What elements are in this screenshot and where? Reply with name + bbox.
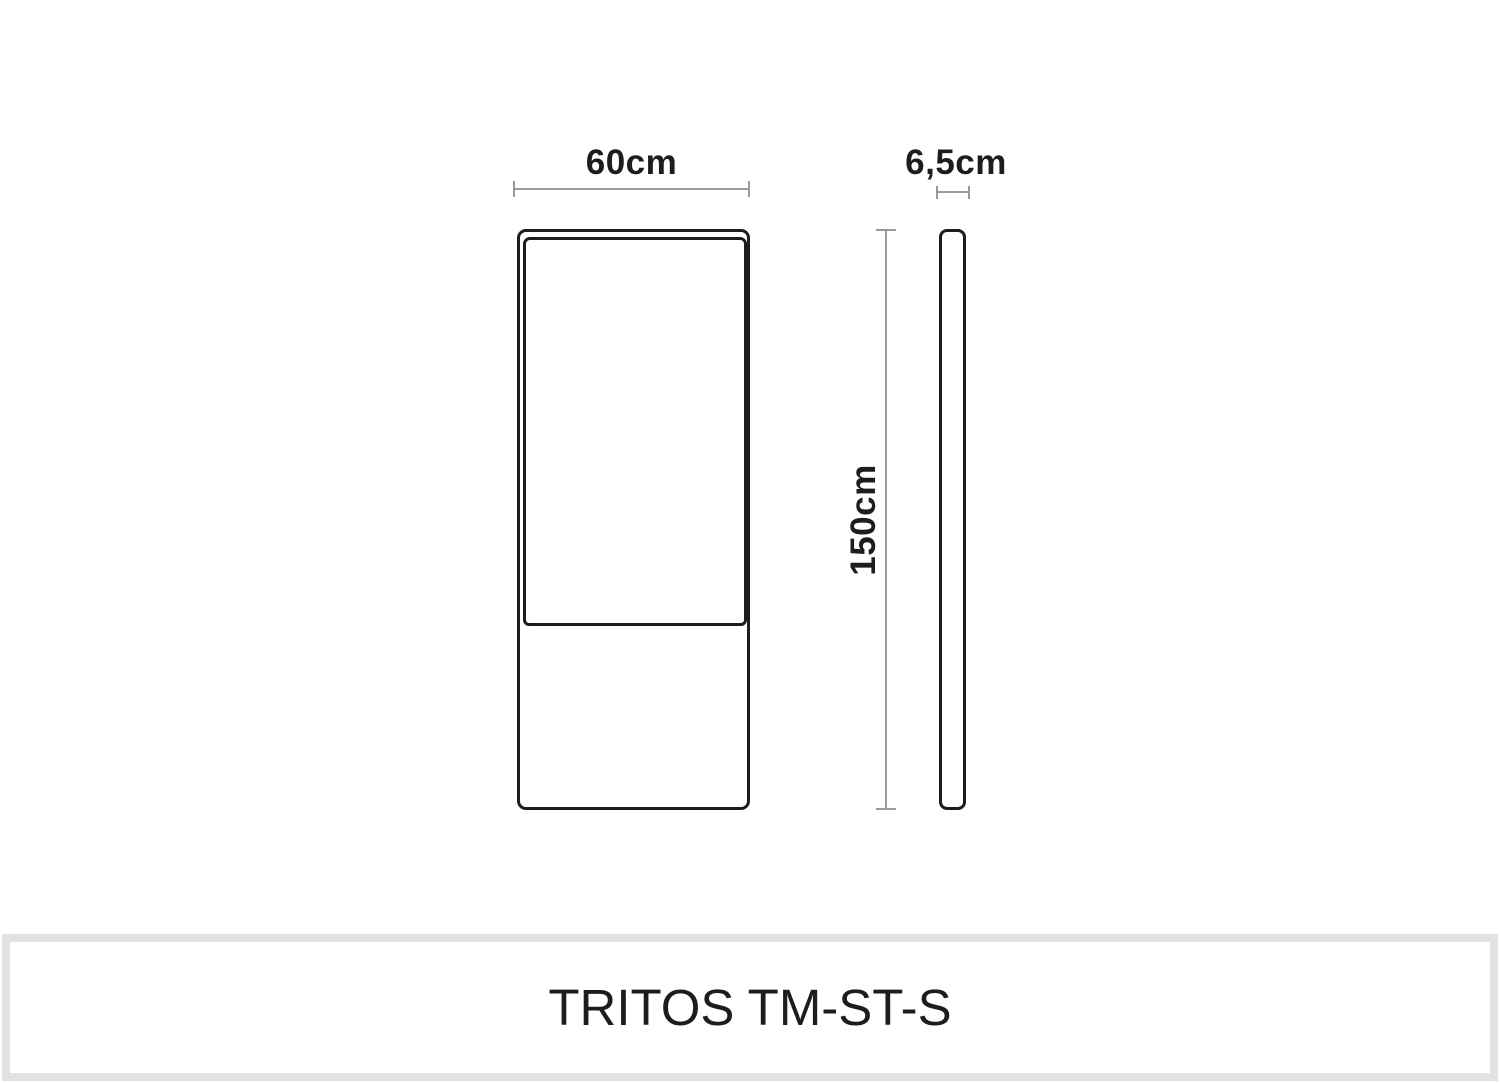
dimension-tick — [748, 181, 750, 197]
totem-side-view-outline — [939, 229, 966, 810]
dimension-tick — [876, 808, 896, 810]
dimension-tick — [936, 186, 938, 199]
model-banner: TRITOS TM-ST-S — [2, 934, 1498, 1081]
side-depth-dimension-line — [936, 191, 970, 193]
dimension-tick — [876, 229, 896, 231]
dimension-tick — [513, 181, 515, 197]
dimension-tick — [968, 186, 970, 199]
model-name: TRITOS TM-ST-S — [548, 978, 951, 1037]
side-depth-label: 6,5cm — [886, 143, 1026, 183]
front-width-label: 60cm — [513, 143, 750, 183]
totem-screen-panel — [523, 237, 747, 626]
front-width-dimension-line — [513, 188, 750, 190]
dimension-drawing: 60cm 6,5cm 150cm TRITOS TM-ST-S — [0, 0, 1500, 1083]
front-height-label: 150cm — [844, 445, 884, 595]
front-height-dimension-line — [885, 229, 887, 810]
